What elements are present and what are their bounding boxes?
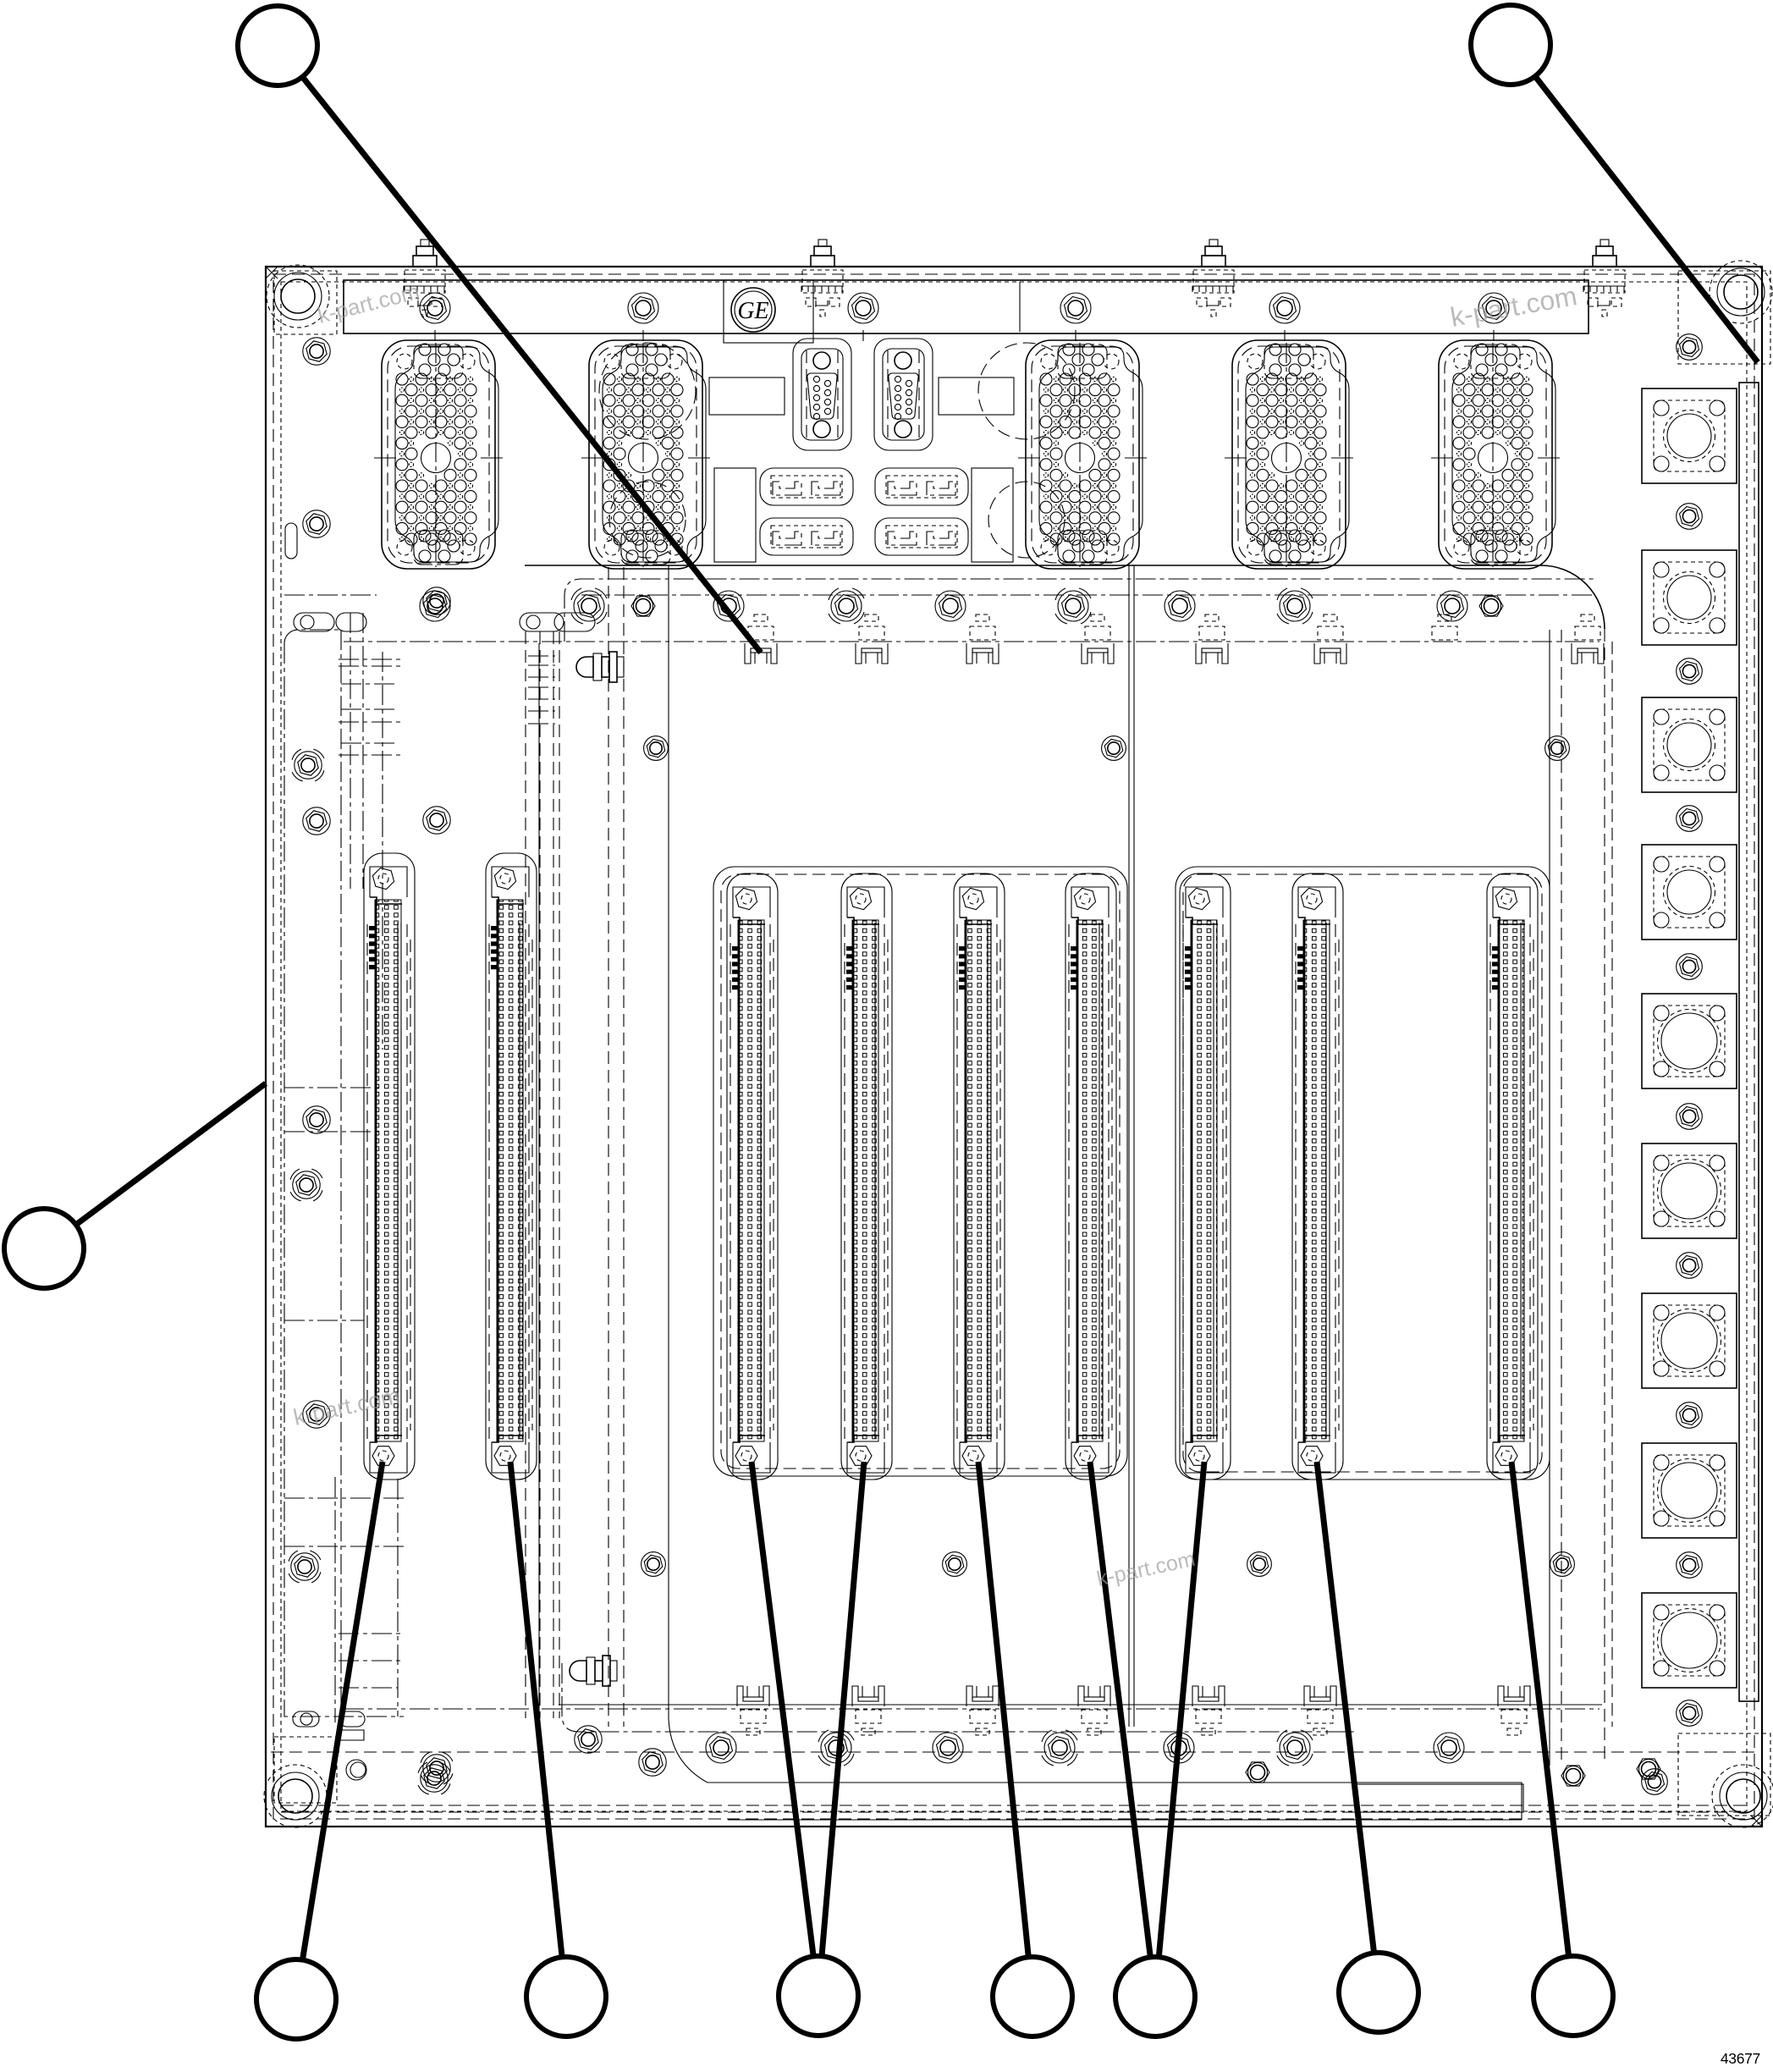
svg-text:43677: 43677 [1721,2050,1760,2067]
svg-text:GE: GE [737,298,768,324]
